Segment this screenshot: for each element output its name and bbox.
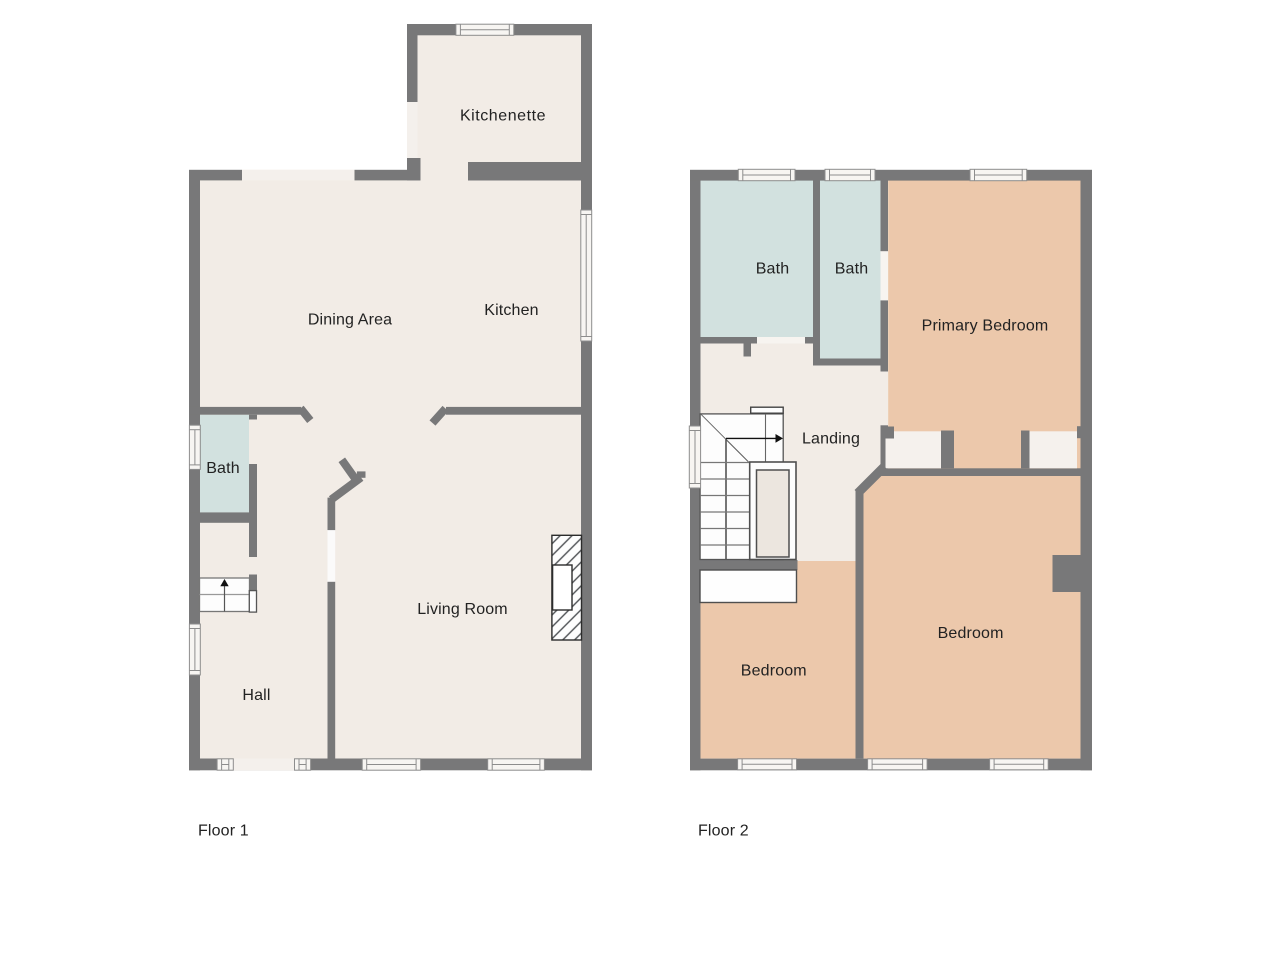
svg-text:Floor 2: Floor 2 bbox=[698, 822, 749, 839]
svg-text:Living Room: Living Room bbox=[417, 601, 508, 618]
svg-text:Landing: Landing bbox=[802, 431, 860, 448]
svg-text:Floor 1: Floor 1 bbox=[198, 822, 249, 839]
svg-text:Bath: Bath bbox=[835, 261, 869, 278]
svg-text:Dining Area: Dining Area bbox=[308, 312, 392, 329]
svg-text:Bath: Bath bbox=[206, 460, 240, 477]
svg-text:Bedroom: Bedroom bbox=[938, 625, 1004, 642]
svg-text:Hall: Hall bbox=[242, 687, 270, 704]
svg-text:Kitchenette: Kitchenette bbox=[460, 107, 546, 124]
svg-text:Bath: Bath bbox=[756, 261, 790, 278]
svg-text:Primary Bedroom: Primary Bedroom bbox=[922, 318, 1049, 335]
svg-text:Kitchen: Kitchen bbox=[484, 302, 538, 319]
svg-text:Bedroom: Bedroom bbox=[741, 663, 807, 680]
